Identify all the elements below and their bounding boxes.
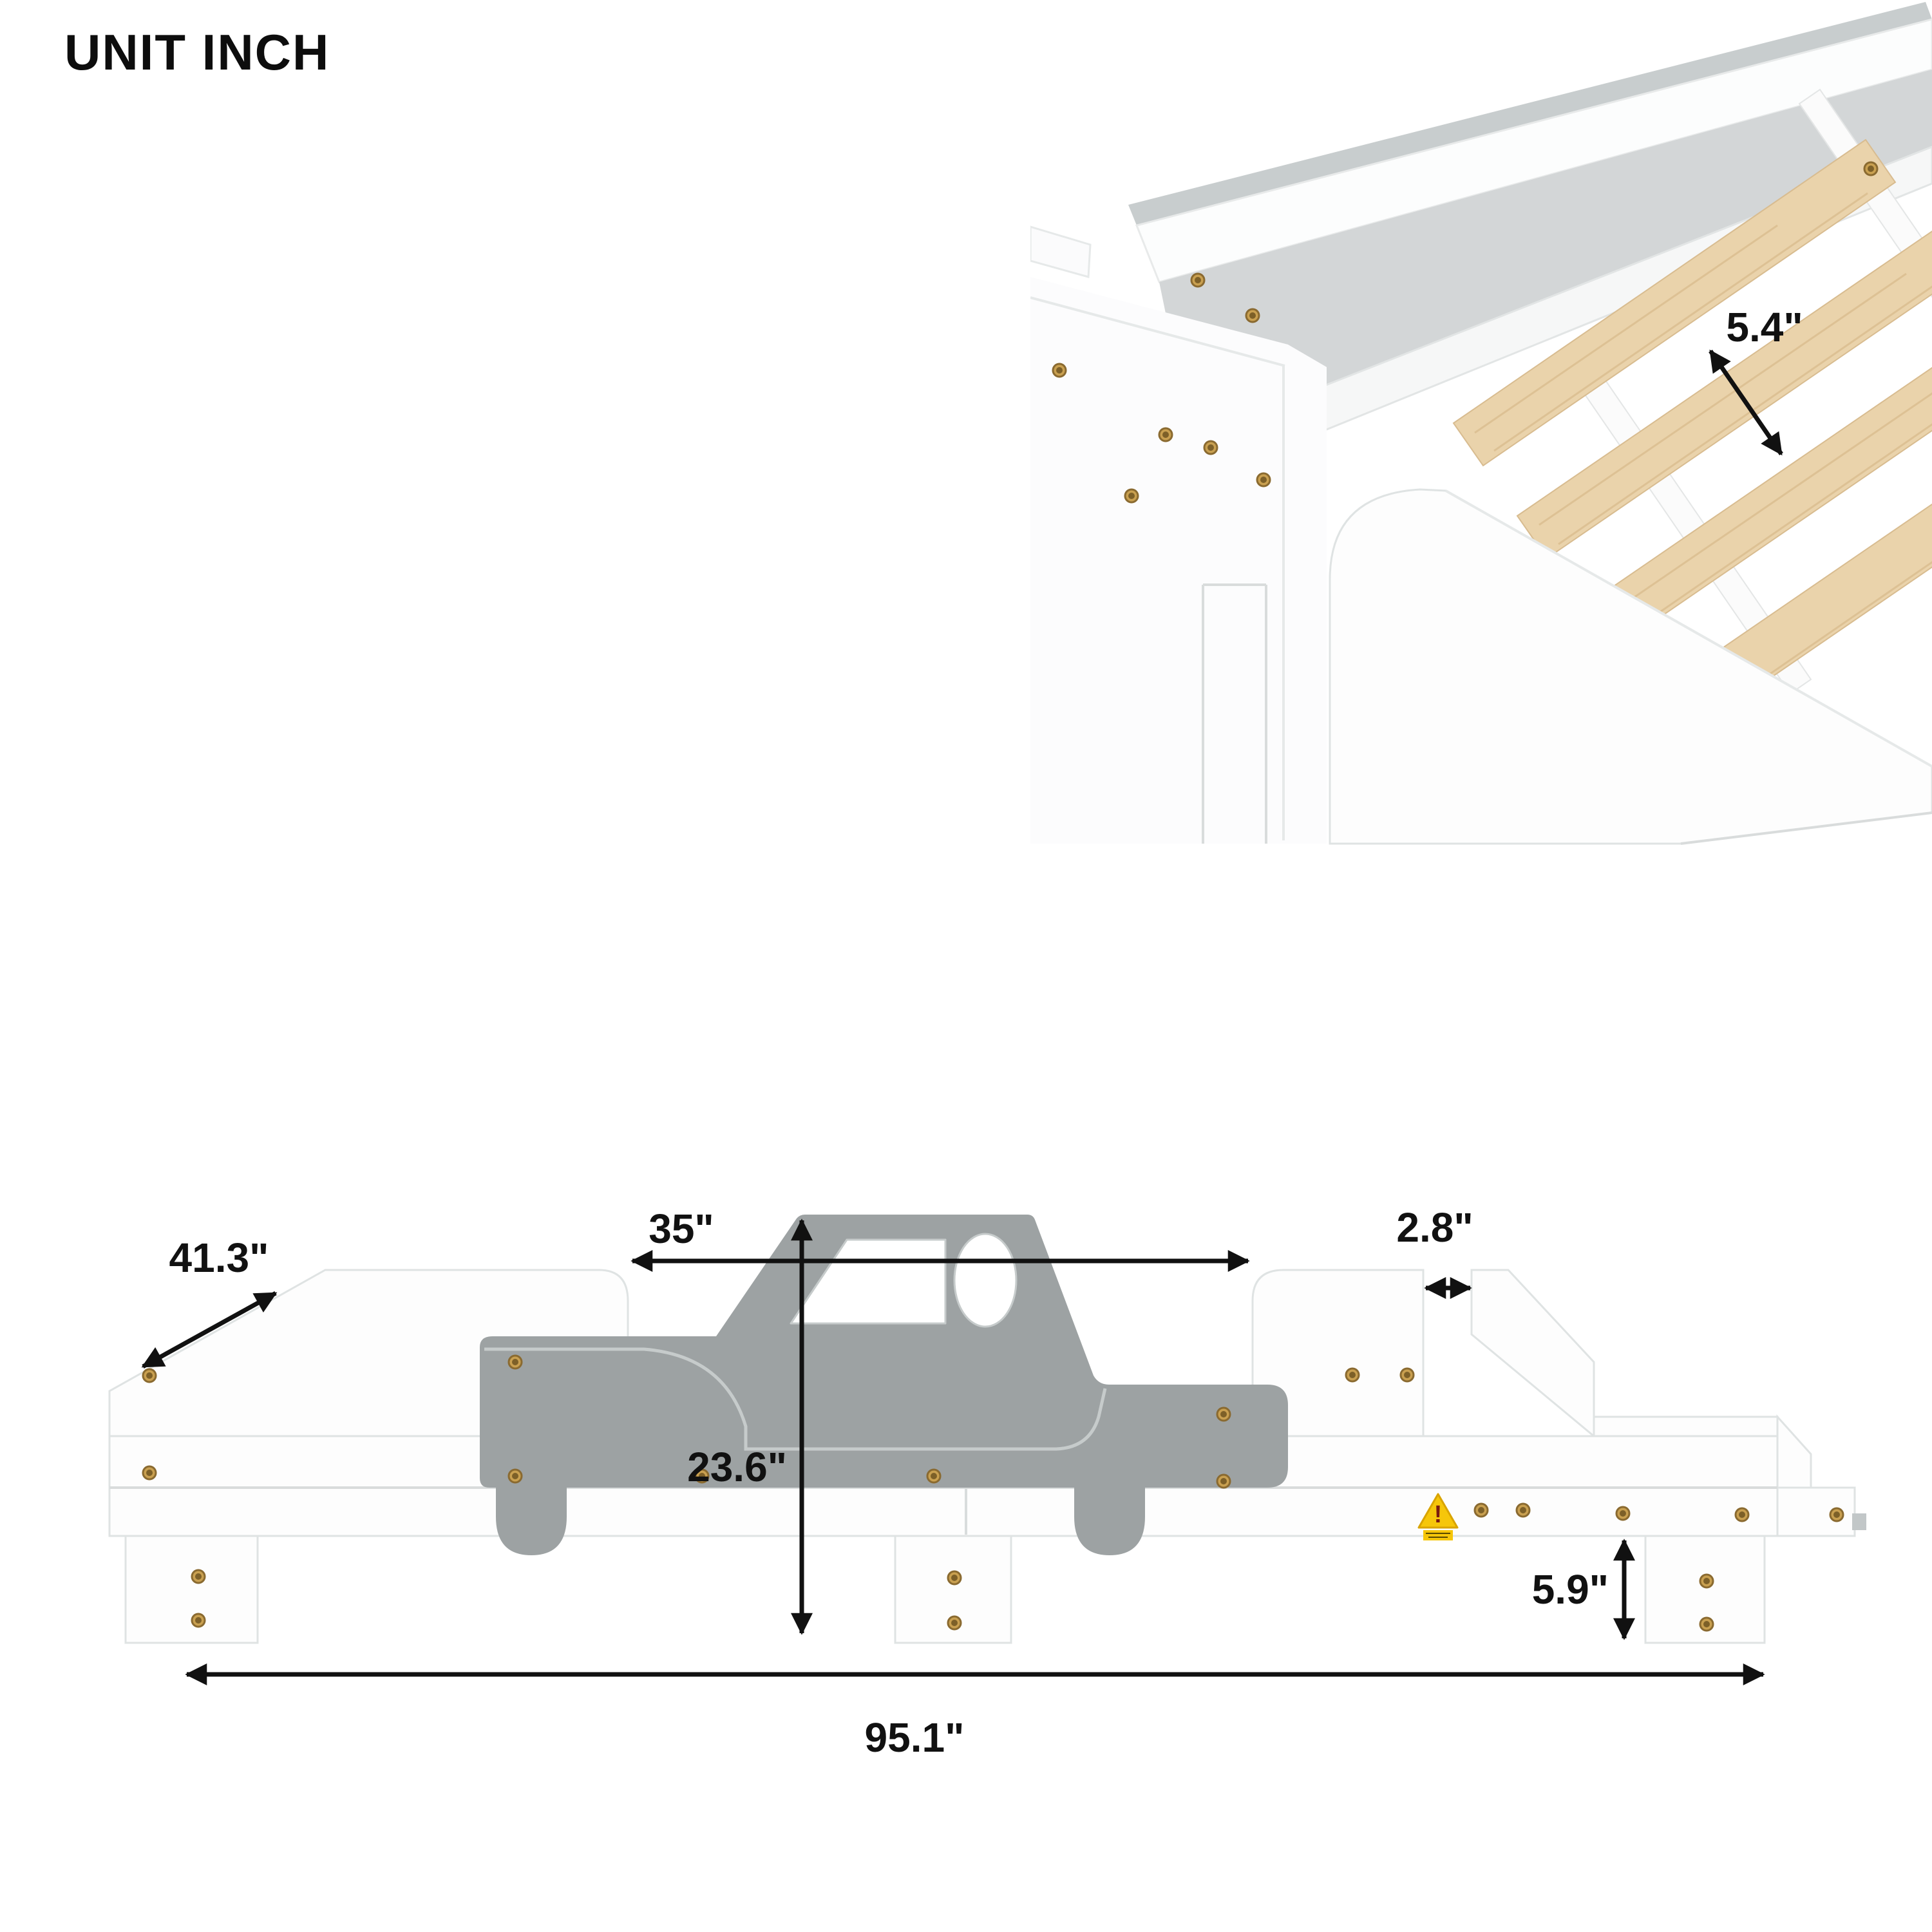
leg-height-label: 5.9" — [1532, 1566, 1609, 1613]
back-rail-wedge — [1472, 1270, 1594, 1436]
bed-legs — [126, 1535, 1765, 1643]
gap-label: 2.8" — [1396, 1204, 1473, 1251]
dim-length: 95.1" — [187, 1674, 1763, 1761]
car-window-round — [954, 1234, 1016, 1327]
left-leg — [126, 1535, 258, 1643]
warning-mark: ! — [1434, 1501, 1443, 1528]
footboard-cap — [1030, 227, 1090, 277]
slat-spacing-label: 5.4" — [1726, 304, 1803, 350]
deck-bracket — [1852, 1513, 1866, 1530]
page-title: UNIT INCH — [64, 24, 330, 80]
bed-corner-photo: 5.4" — [1030, 2, 1932, 844]
depth-label: 41.3" — [169, 1235, 269, 1281]
deck-step-wedge — [1777, 1417, 1811, 1488]
opening-label: 35" — [649, 1206, 714, 1252]
bed-side-view: ! — [109, 1204, 1866, 1761]
near-side-rail — [1330, 489, 1932, 844]
product-dimension-sheet: UNIT INCH — [0, 0, 1932, 1932]
height-label: 23.6" — [687, 1444, 787, 1490]
length-label: 95.1" — [865, 1714, 965, 1761]
dim-leg-height: 5.9" — [1532, 1540, 1624, 1638]
